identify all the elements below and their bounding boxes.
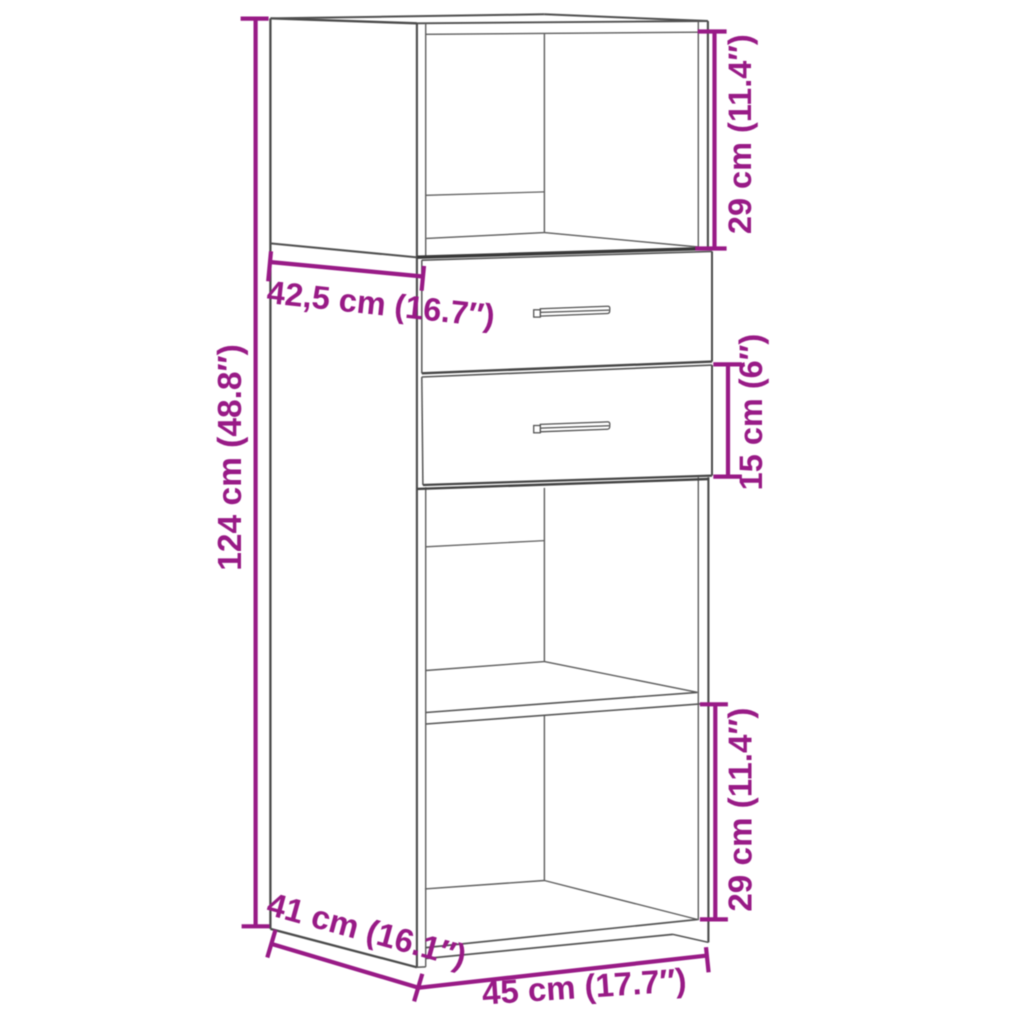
svg-text:29 cm (11.4″): 29 cm (11.4″) — [722, 34, 758, 234]
svg-text:15 cm (6″): 15 cm (6″) — [733, 334, 769, 490]
svg-text:29 cm (11.4″): 29 cm (11.4″) — [722, 708, 759, 912]
svg-text:124 cm (48.8″): 124 cm (48.8″) — [212, 344, 249, 571]
